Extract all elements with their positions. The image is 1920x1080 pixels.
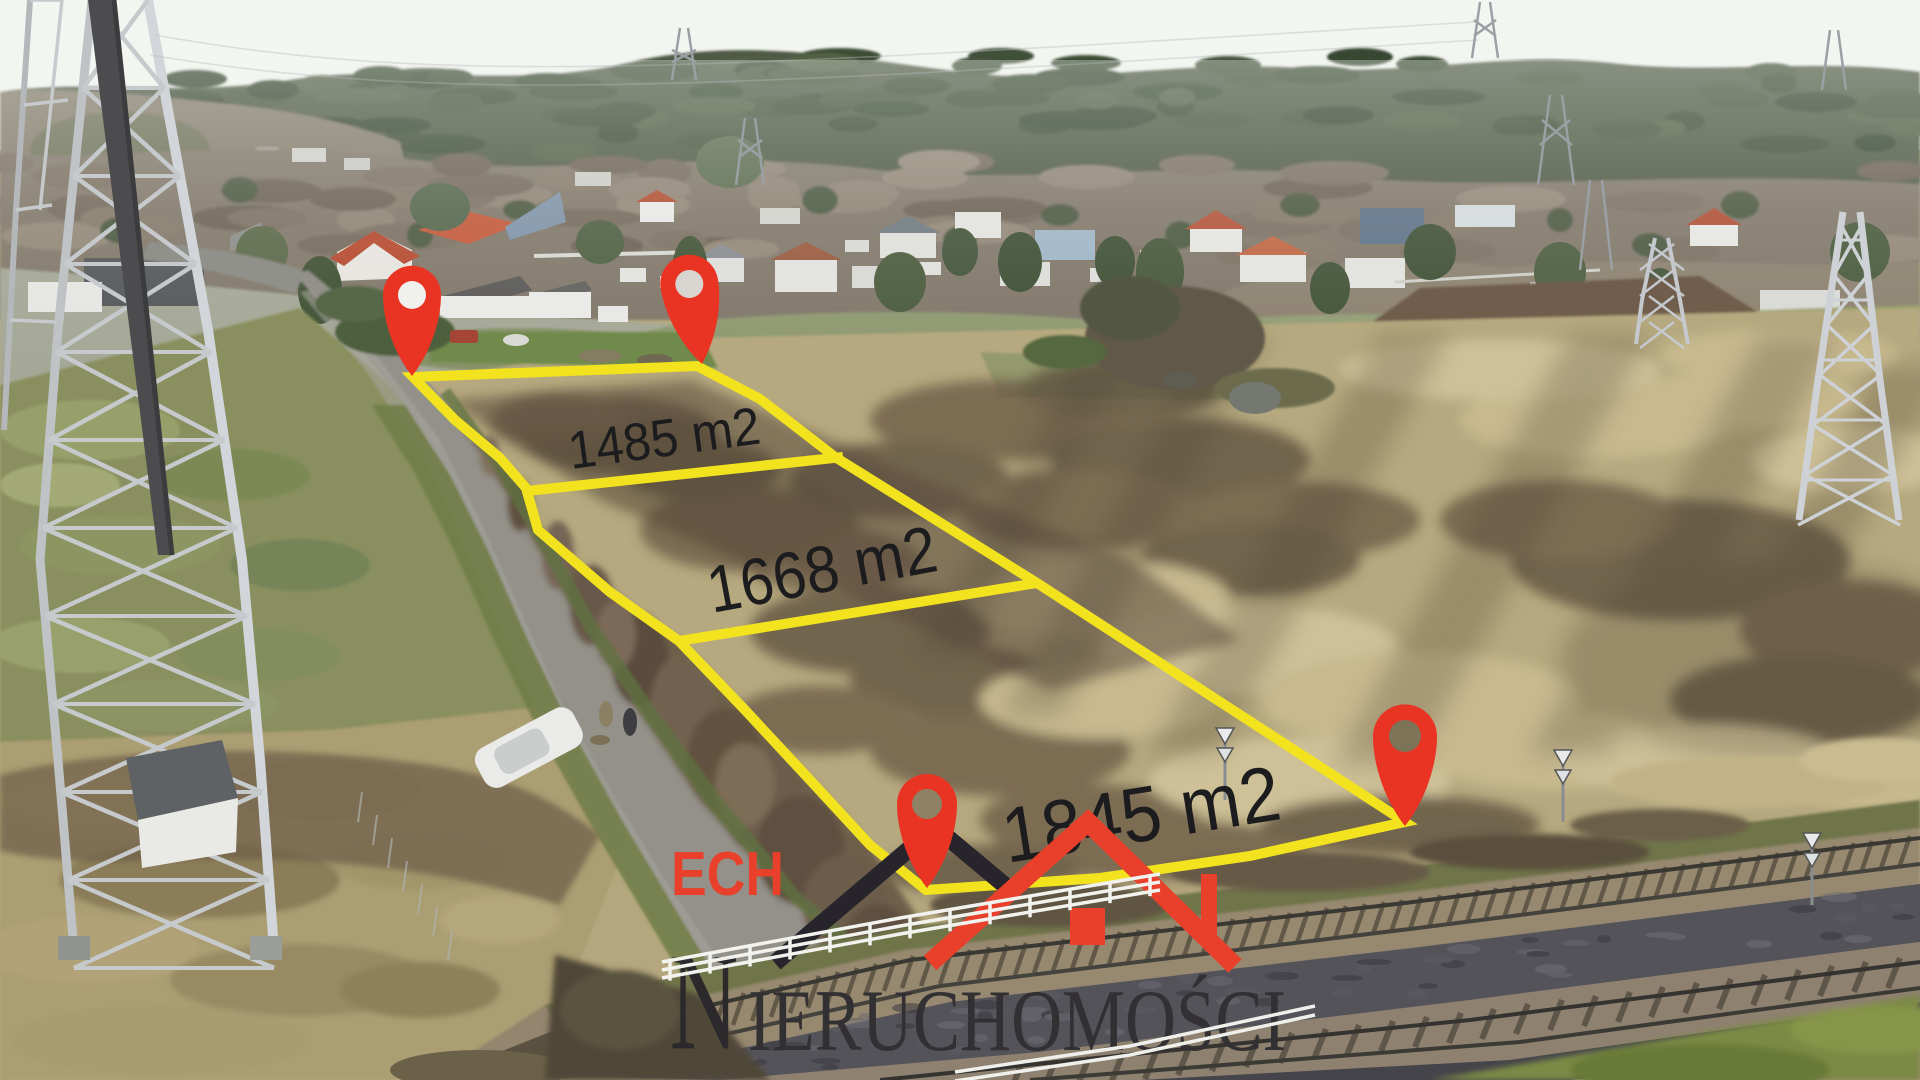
svg-text:ECH: ECH	[671, 840, 784, 909]
svg-text:IERUCHOMOŚCI: IERUCHOMOŚCI	[748, 973, 1286, 1070]
svg-text:N: N	[670, 925, 738, 1078]
